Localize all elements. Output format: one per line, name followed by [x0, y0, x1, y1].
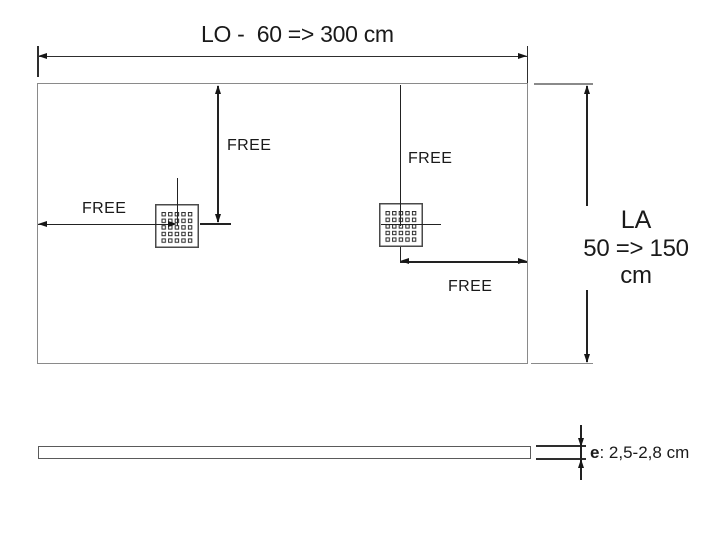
width-dimension-label: LA 50 => 150 cm: [565, 206, 707, 290]
thickness-dimension-line: [580, 425, 581, 480]
width-label-range: 50 => 150 cm: [565, 235, 707, 290]
length-dimension-label: LO - 60 => 300 cm: [201, 21, 394, 48]
free-label-left: FREE: [82, 200, 126, 218]
free-bottom-arrowhead-left-icon: [400, 258, 409, 264]
drain-right-centerline-horizontal: [381, 224, 441, 225]
free-vertical-arrowhead-down-icon: [215, 214, 221, 223]
free-label-top-left: FREE: [227, 137, 271, 155]
width-extension-line-bottom: [531, 363, 593, 364]
thickness-range: : 2,5-2,8 cm: [599, 443, 689, 462]
thickness-label: e: 2,5-2,8 cm: [590, 443, 689, 463]
length-arrowhead-left-icon: [38, 53, 47, 59]
drain-right-centerline-vertical-top: [400, 85, 401, 226]
shower-tray-dimension-diagram: LO - 60 => 300 cm FREE FREE: [0, 0, 720, 540]
length-arrowhead-right-icon: [518, 53, 527, 59]
thickness-arrowhead-up-icon: [578, 459, 584, 468]
free-label-bottom-right: FREE: [448, 278, 492, 296]
free-vertical-arrowhead-up-icon: [215, 85, 221, 94]
free-label-top-right: FREE: [408, 150, 452, 168]
drain-left-centerline-vertical: [177, 178, 178, 226]
free-left-arrowhead-left-icon: [38, 221, 47, 227]
thickness-arrowhead-down-icon: [578, 438, 584, 447]
width-arrowhead-up-icon: [584, 85, 590, 94]
length-dimension-line: [38, 56, 527, 57]
width-label-code: LA: [565, 206, 707, 235]
free-dimension-line-vertical-left: [217, 86, 218, 222]
free-dimension-line-bottom-right: [400, 261, 527, 262]
tray-side-view: [38, 446, 531, 459]
free-left-arrowhead-right-icon: [168, 221, 177, 227]
length-extension-line-left: [37, 46, 38, 77]
drain-left-centerline-horizontal: [200, 223, 231, 224]
free-dimension-line-left: [38, 224, 169, 225]
free-bottom-arrowhead-right-icon: [518, 258, 527, 264]
width-arrowhead-down-icon: [584, 354, 590, 363]
